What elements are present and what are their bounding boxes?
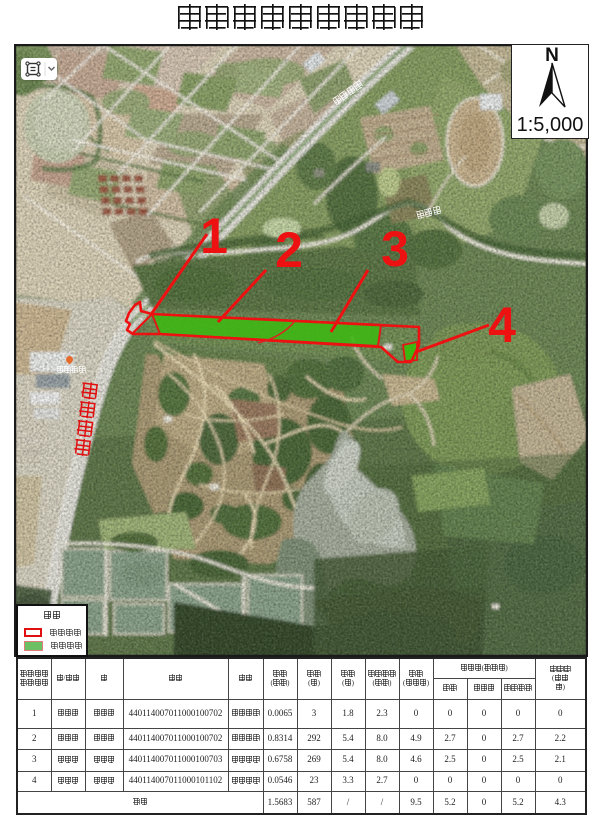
- svg-text:2: 2: [275, 222, 303, 278]
- svg-text:N: N: [545, 45, 559, 66]
- svg-text:1:5,000: 1:5,000: [517, 114, 584, 136]
- svg-text:4: 4: [488, 297, 516, 353]
- svg-text:3: 3: [381, 221, 409, 277]
- svg-text:1: 1: [200, 208, 228, 264]
